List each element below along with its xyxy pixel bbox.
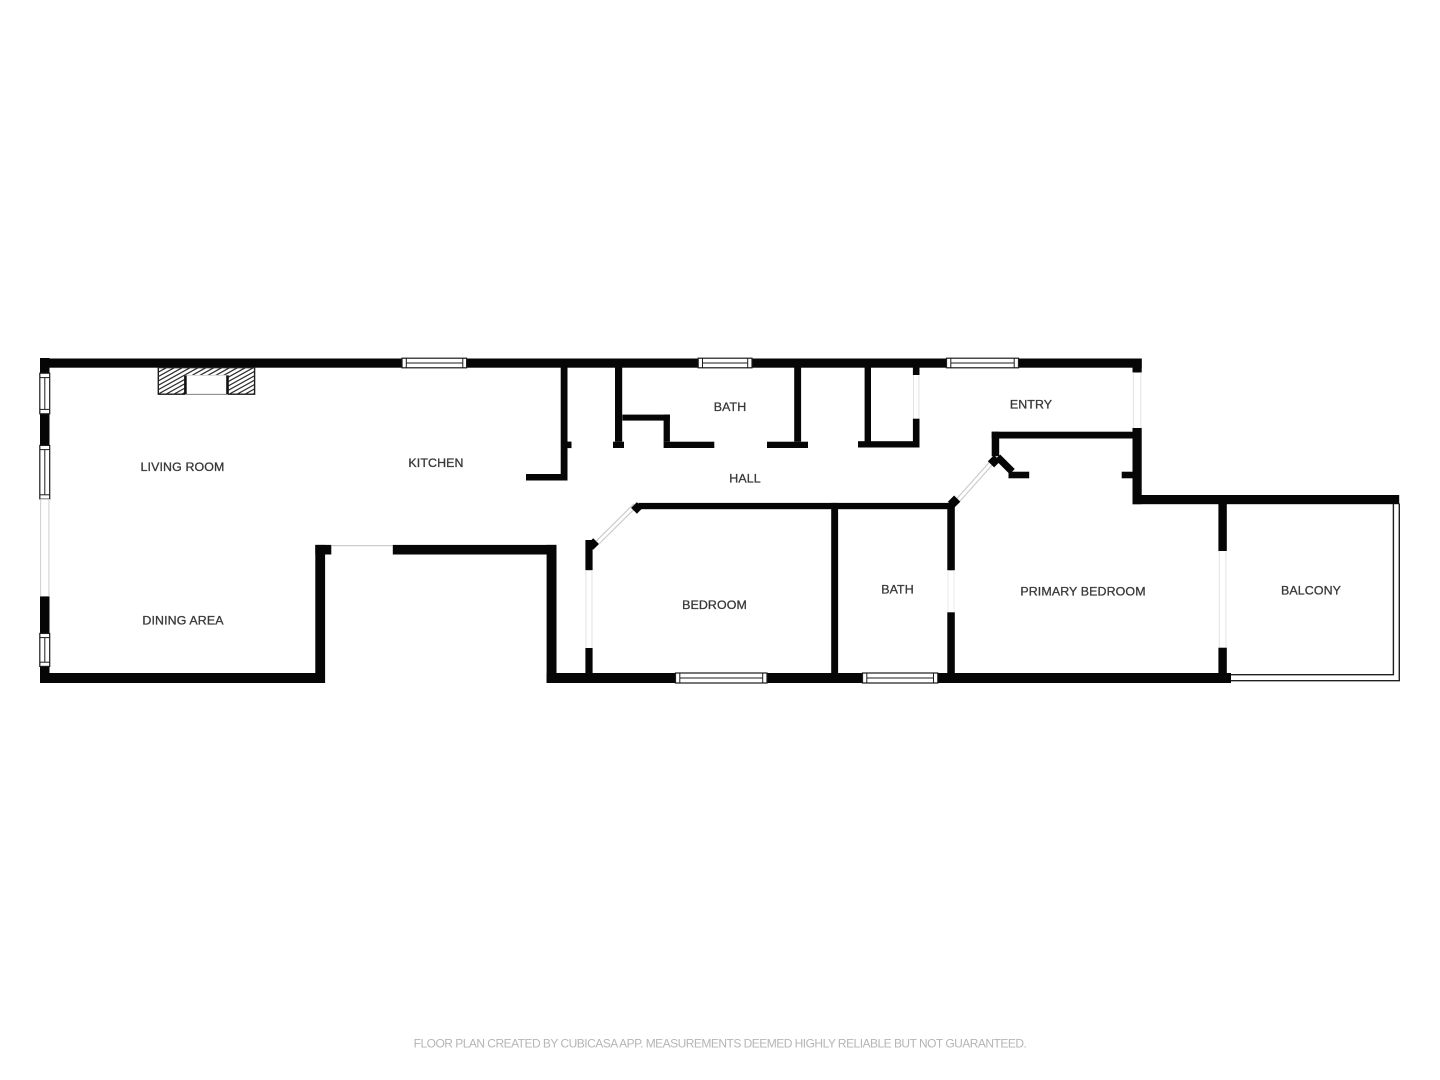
svg-text:BALCONY: BALCONY [1281,584,1341,598]
svg-text:BEDROOM: BEDROOM [682,598,747,612]
svg-text:HALL: HALL [729,471,760,485]
svg-text:BATH: BATH [881,582,914,596]
svg-text:ENTRY: ENTRY [1010,398,1052,412]
svg-text:FLOOR PLAN CREATED BY CUBICASA: FLOOR PLAN CREATED BY CUBICASA APP. MEAS… [414,1037,1027,1051]
svg-text:DINING AREA: DINING AREA [142,613,224,627]
svg-text:BATH: BATH [714,400,747,414]
svg-text:PRIMARY BEDROOM: PRIMARY BEDROOM [1020,585,1145,599]
svg-text:LIVING ROOM: LIVING ROOM [141,460,225,474]
svg-text:KITCHEN: KITCHEN [408,456,463,470]
